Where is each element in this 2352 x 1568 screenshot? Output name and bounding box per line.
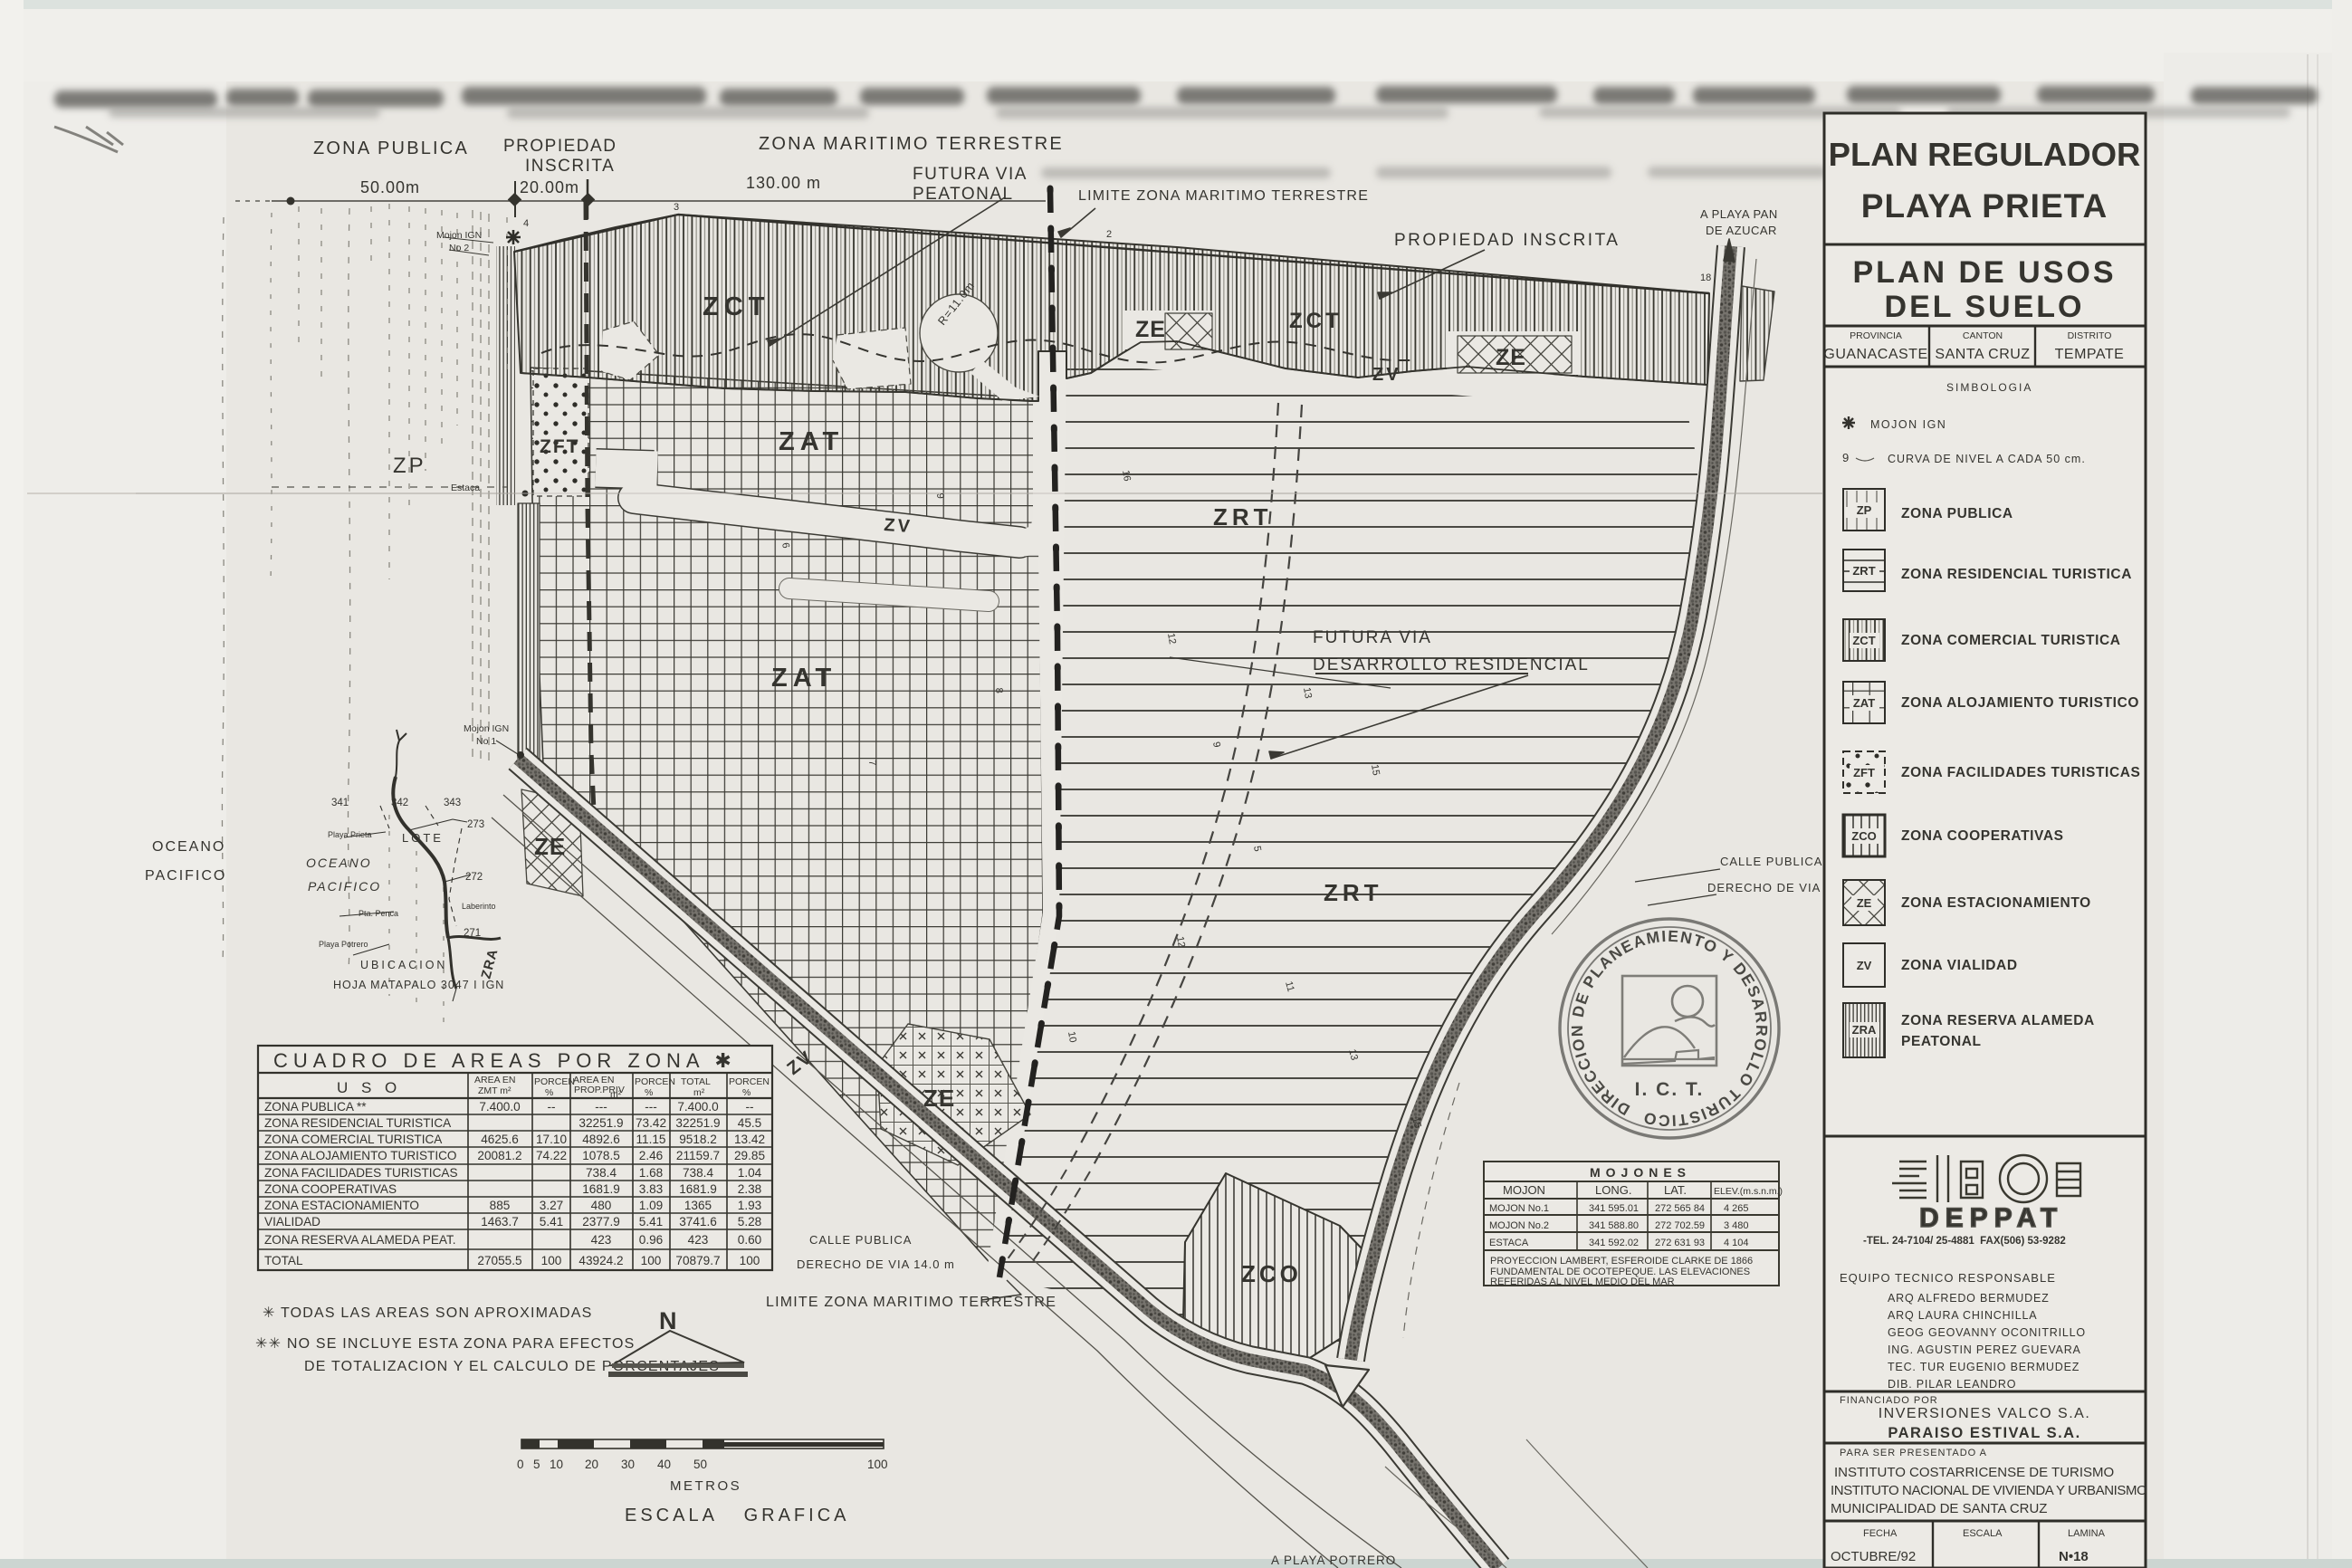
svg-text:DISTRITO: DISTRITO bbox=[2068, 330, 2112, 341]
svg-text:1365: 1365 bbox=[684, 1199, 712, 1212]
svg-text:4892.6: 4892.6 bbox=[582, 1133, 620, 1146]
svg-text:A PLAYA POTRERO: A PLAYA POTRERO bbox=[1271, 1554, 1396, 1567]
svg-text:2: 2 bbox=[1106, 229, 1112, 240]
svg-text:1.04: 1.04 bbox=[738, 1166, 762, 1180]
svg-text:273: 273 bbox=[467, 819, 484, 830]
svg-text:423: 423 bbox=[688, 1233, 709, 1247]
svg-text:100: 100 bbox=[641, 1254, 662, 1267]
svg-text:ZCT: ZCT bbox=[703, 292, 770, 321]
svg-text:3.27: 3.27 bbox=[540, 1199, 563, 1212]
svg-text:272 702.59: 272 702.59 bbox=[1655, 1220, 1705, 1231]
svg-text:480: 480 bbox=[591, 1199, 612, 1212]
svg-text:ZONA COOPERATIVAS: ZONA COOPERATIVAS bbox=[264, 1182, 397, 1196]
svg-text:UBICACION: UBICACION bbox=[360, 959, 447, 971]
svg-text:TOTAL: TOTAL bbox=[264, 1254, 303, 1267]
svg-text:5.41: 5.41 bbox=[540, 1215, 563, 1229]
svg-text:738.4: 738.4 bbox=[586, 1166, 617, 1180]
svg-text:ZONA MARITIMO TERRESTRE: ZONA MARITIMO TERRESTRE bbox=[759, 134, 1064, 154]
svg-text:CURVA DE NIVEL A CADA 50 cm.: CURVA DE NIVEL A CADA 50 cm. bbox=[1888, 453, 2086, 465]
svg-text:PROYECCION LAMBERT, ESFEROIDE: PROYECCION LAMBERT, ESFEROIDE CLARKE DE … bbox=[1490, 1256, 1753, 1267]
svg-text:HOJA MATAPALO 3047 I IGN: HOJA MATAPALO 3047 I IGN bbox=[333, 979, 504, 991]
svg-text:m²: m² bbox=[610, 1089, 622, 1100]
svg-text:%: % bbox=[645, 1087, 653, 1098]
svg-text:18: 18 bbox=[1700, 272, 1711, 283]
svg-text:DERECHO DE VIA 14.0 m: DERECHO DE VIA 14.0 m bbox=[797, 1257, 955, 1271]
svg-text:10: 10 bbox=[550, 1458, 563, 1471]
svg-text:ZAT: ZAT bbox=[1853, 696, 1875, 710]
svg-text:No 2: No 2 bbox=[449, 243, 469, 253]
svg-text:FUTURA VIA: FUTURA VIA bbox=[1313, 628, 1432, 647]
svg-text:27055.5: 27055.5 bbox=[477, 1254, 521, 1267]
svg-text:PARA SER PRESENTADO A: PARA SER PRESENTADO A bbox=[1840, 1448, 1987, 1458]
svg-text:100: 100 bbox=[867, 1458, 888, 1471]
svg-text:ZE: ZE bbox=[1857, 896, 1872, 910]
svg-text:LONG.: LONG. bbox=[1595, 1183, 1631, 1197]
svg-text:TOTAL: TOTAL bbox=[681, 1076, 711, 1087]
svg-text:272 565 84: 272 565 84 bbox=[1655, 1203, 1705, 1214]
svg-text:LAMINA: LAMINA bbox=[2068, 1528, 2106, 1539]
svg-text:ARQ ALFREDO BERMUDEZ: ARQ ALFREDO BERMUDEZ bbox=[1888, 1292, 2050, 1305]
svg-text:341: 341 bbox=[331, 798, 349, 808]
svg-text:OCEANO: OCEANO bbox=[306, 856, 372, 870]
svg-text:100: 100 bbox=[541, 1254, 562, 1267]
svg-text:ESCALA: ESCALA bbox=[1963, 1528, 2003, 1539]
svg-text:N•18: N•18 bbox=[2059, 1549, 2089, 1564]
svg-text:3 480: 3 480 bbox=[1724, 1220, 1749, 1231]
svg-text:271: 271 bbox=[464, 928, 481, 939]
svg-text:43924.2: 43924.2 bbox=[578, 1254, 623, 1267]
svg-text:30: 30 bbox=[621, 1458, 635, 1471]
svg-text:29.85: 29.85 bbox=[734, 1149, 765, 1162]
svg-text:PACIFICO: PACIFICO bbox=[308, 879, 381, 894]
svg-text:ZE: ZE bbox=[1496, 345, 1526, 370]
svg-text:73.42: 73.42 bbox=[636, 1116, 666, 1130]
svg-text:ZONA ALOJAMIENTO TURISTICO: ZONA ALOJAMIENTO TURISTICO bbox=[1901, 695, 2139, 711]
svg-text:CANTON: CANTON bbox=[1963, 330, 2003, 341]
svg-text:DESARROLLO RESIDENCIAL: DESARROLLO RESIDENCIAL bbox=[1313, 655, 1590, 674]
svg-text:5.28: 5.28 bbox=[738, 1215, 761, 1229]
svg-text:REFERIDAS AL NIVEL MEDIO DEL M: REFERIDAS AL NIVEL MEDIO DEL MAR bbox=[1490, 1276, 1675, 1287]
svg-text:4 104: 4 104 bbox=[1724, 1238, 1749, 1248]
svg-text:TEMPATE: TEMPATE bbox=[2055, 347, 2125, 362]
svg-text:PROPIEDAD INSCRITA: PROPIEDAD INSCRITA bbox=[1394, 231, 1620, 250]
svg-text:A PLAYA PAN: A PLAYA PAN bbox=[1700, 207, 1778, 221]
svg-text:341 592.02: 341 592.02 bbox=[1589, 1238, 1639, 1248]
svg-text:ZONA COOPERATIVAS: ZONA COOPERATIVAS bbox=[1901, 828, 2064, 844]
svg-text:PROPIEDAD: PROPIEDAD bbox=[503, 137, 617, 156]
svg-text:INSCRITA: INSCRITA bbox=[525, 157, 615, 176]
svg-text:CALLE PUBLICA: CALLE PUBLICA bbox=[1720, 855, 1822, 868]
svg-text:METROS: METROS bbox=[670, 1478, 741, 1494]
svg-text:EQUIPO TECNICO RESPONSABLE: EQUIPO TECNICO RESPONSABLE bbox=[1840, 1271, 2056, 1285]
svg-text:ELEV.(m.s.n.m.): ELEV.(m.s.n.m.) bbox=[1714, 1186, 1783, 1197]
svg-text:ZE: ZE bbox=[923, 1085, 955, 1112]
svg-text:SANTA CRUZ: SANTA CRUZ bbox=[1935, 347, 2030, 362]
svg-text:PROVINCIA: PROVINCIA bbox=[1850, 330, 1902, 341]
svg-text:ZONA VIALIDAD: ZONA VIALIDAD bbox=[1901, 958, 2018, 973]
svg-text:Playa Potrero: Playa Potrero bbox=[319, 940, 368, 949]
svg-text:21159.7: 21159.7 bbox=[676, 1149, 720, 1162]
svg-text:9518.2: 9518.2 bbox=[679, 1133, 717, 1146]
svg-text:ZONA FACILIDADES TURISTICAS: ZONA FACILIDADES TURISTICAS bbox=[1901, 765, 2141, 780]
svg-text:PORCEN: PORCEN bbox=[635, 1076, 675, 1087]
svg-text:50.00m: 50.00m bbox=[360, 178, 420, 196]
svg-text:ZRT: ZRT bbox=[1324, 879, 1383, 906]
svg-text:ZCT: ZCT bbox=[1852, 634, 1875, 647]
svg-text:FUTURA VIA: FUTURA VIA bbox=[913, 165, 1028, 184]
svg-text:I. C. T.: I. C. T. bbox=[1635, 1079, 1705, 1100]
svg-text:INVERSIONES VALCO S.A.: INVERSIONES VALCO S.A. bbox=[1879, 1406, 2091, 1421]
svg-text:ZONA RESERVA ALAMEDA: ZONA RESERVA ALAMEDA bbox=[1901, 1013, 2095, 1028]
svg-text:ZONA RESIDENCIAL TURISTICA: ZONA RESIDENCIAL TURISTICA bbox=[264, 1116, 452, 1130]
svg-text:1.93: 1.93 bbox=[738, 1199, 761, 1212]
svg-text:8: 8 bbox=[993, 687, 1004, 693]
svg-text:ZONA COMERCIAL TURISTICA: ZONA COMERCIAL TURISTICA bbox=[264, 1133, 443, 1146]
svg-text:ZV: ZV bbox=[884, 515, 913, 537]
svg-text:GUANACASTE: GUANACASTE bbox=[1823, 347, 1927, 362]
svg-text:PORCEN: PORCEN bbox=[534, 1076, 575, 1087]
svg-text:ZV: ZV bbox=[1372, 365, 1401, 385]
svg-text:272: 272 bbox=[465, 872, 483, 883]
svg-text:0.96: 0.96 bbox=[639, 1233, 663, 1247]
svg-text:%: % bbox=[742, 1087, 751, 1098]
svg-text:ZONA COMERCIAL TURISTICA: ZONA COMERCIAL TURISTICA bbox=[1901, 633, 2121, 648]
svg-text:DEL SUELO: DEL SUELO bbox=[1885, 290, 2085, 324]
svg-text:130.00 m: 130.00 m bbox=[746, 174, 821, 192]
svg-text:32251.9: 32251.9 bbox=[578, 1116, 623, 1130]
svg-text:ZRT: ZRT bbox=[1213, 503, 1273, 531]
svg-text:ZE: ZE bbox=[534, 833, 566, 860]
svg-text:MOJON: MOJON bbox=[1503, 1183, 1545, 1197]
svg-text:20081.2: 20081.2 bbox=[477, 1149, 521, 1162]
svg-text:1.68: 1.68 bbox=[639, 1166, 663, 1180]
svg-text:12: 12 bbox=[1174, 935, 1187, 948]
svg-text:ZCT: ZCT bbox=[1289, 309, 1343, 333]
svg-text:MOJONES: MOJONES bbox=[1590, 1165, 1691, 1180]
svg-text:13: 13 bbox=[1301, 686, 1314, 699]
svg-text:OCEANO: OCEANO bbox=[152, 839, 225, 855]
svg-text:ZONA RESIDENCIAL TURISTICA: ZONA RESIDENCIAL TURISTICA bbox=[1901, 567, 2132, 582]
svg-text:VIALIDAD: VIALIDAD bbox=[264, 1215, 320, 1229]
svg-text:343: 343 bbox=[444, 798, 461, 808]
svg-text:--: -- bbox=[547, 1100, 555, 1114]
svg-text:PEATONAL: PEATONAL bbox=[913, 185, 1014, 204]
svg-text:341 595.01: 341 595.01 bbox=[1589, 1203, 1639, 1214]
svg-text:GEOG GEOVANNY OCONITRILLO: GEOG GEOVANNY OCONITRILLO bbox=[1888, 1326, 2086, 1339]
svg-text:DEPPAT: DEPPAT bbox=[1919, 1203, 2063, 1233]
svg-text:PEATONAL: PEATONAL bbox=[1901, 1034, 1982, 1049]
svg-text:SIMBOLOGIA: SIMBOLOGIA bbox=[1946, 381, 2032, 394]
svg-text:INSTITUTO NACIONAL DE VIVIENDA: INSTITUTO NACIONAL DE VIVIENDA Y URBANIS… bbox=[1831, 1483, 2146, 1498]
svg-text:5: 5 bbox=[533, 1458, 540, 1471]
svg-text:ZONA ESTACIONAMIENTO: ZONA ESTACIONAMIENTO bbox=[1901, 895, 2091, 911]
svg-text:32251.9: 32251.9 bbox=[675, 1116, 720, 1130]
svg-text:0.60: 0.60 bbox=[738, 1233, 762, 1247]
svg-text:✳ TODAS LAS AREAS SON APROXIM: ✳ TODAS LAS AREAS SON APROXIMADAS bbox=[263, 1305, 593, 1321]
svg-text:DE AZUCAR: DE AZUCAR bbox=[1706, 224, 1777, 237]
svg-text:ESCALA GRAFICA: ESCALA GRAFICA bbox=[625, 1506, 850, 1525]
svg-text:341 588.80: 341 588.80 bbox=[1589, 1220, 1639, 1231]
svg-text:ZE: ZE bbox=[1135, 317, 1166, 342]
svg-text:1463.7: 1463.7 bbox=[481, 1215, 519, 1229]
svg-text:423: 423 bbox=[591, 1233, 612, 1247]
svg-text:1681.9: 1681.9 bbox=[679, 1182, 717, 1196]
svg-text:Laberinto: Laberinto bbox=[462, 902, 496, 911]
svg-text:Mojon IGN: Mojon IGN bbox=[464, 723, 509, 734]
svg-text:3: 3 bbox=[674, 202, 679, 213]
svg-text:OCTUBRE/92: OCTUBRE/92 bbox=[1831, 1549, 1916, 1564]
svg-text:INSTITUTO COSTARRICENSE DE TUR: INSTITUTO COSTARRICENSE DE TURISMO bbox=[1834, 1465, 2114, 1480]
svg-text:2.46: 2.46 bbox=[639, 1149, 663, 1162]
svg-text:LOTE: LOTE bbox=[402, 831, 444, 845]
svg-text:m²: m² bbox=[693, 1087, 705, 1098]
svg-text:45.5: 45.5 bbox=[738, 1116, 761, 1130]
svg-text:885: 885 bbox=[490, 1199, 511, 1212]
svg-text:50: 50 bbox=[693, 1458, 707, 1471]
svg-text:ZRA: ZRA bbox=[1852, 1023, 1877, 1037]
svg-text:17.10: 17.10 bbox=[536, 1133, 567, 1146]
svg-text:ZV: ZV bbox=[1857, 959, 1872, 972]
svg-text:ARQ LAURA CHINCHILLA: ARQ LAURA CHINCHILLA bbox=[1888, 1309, 2037, 1322]
svg-text:ZONA PUBLICA **: ZONA PUBLICA ** bbox=[264, 1100, 367, 1114]
svg-text:1681.9: 1681.9 bbox=[582, 1182, 620, 1196]
svg-text:ZP: ZP bbox=[393, 454, 426, 478]
svg-text:ZONA PUBLICA: ZONA PUBLICA bbox=[313, 139, 469, 158]
svg-text:ZONA PUBLICA: ZONA PUBLICA bbox=[1901, 506, 2013, 521]
svg-text:---: --- bbox=[595, 1100, 607, 1114]
svg-text:ZONA RESERVA ALAMEDA PEAT.: ZONA RESERVA ALAMEDA PEAT. bbox=[264, 1233, 456, 1247]
svg-text:PLAN DE USOS: PLAN DE USOS bbox=[1852, 255, 2116, 290]
svg-text:PACIFICO: PACIFICO bbox=[145, 868, 226, 884]
svg-text:1078.5: 1078.5 bbox=[582, 1149, 620, 1162]
svg-text:342: 342 bbox=[391, 798, 408, 808]
svg-text:ZONA FACILIDADES TURISTICAS: ZONA FACILIDADES TURISTICAS bbox=[264, 1166, 458, 1180]
svg-text:AREA EN: AREA EN bbox=[474, 1075, 516, 1085]
svg-text:13.42: 13.42 bbox=[734, 1133, 765, 1146]
svg-text:ZAT: ZAT bbox=[771, 664, 837, 693]
svg-text:ZAT: ZAT bbox=[779, 427, 844, 456]
svg-text:CUADRO DE AREAS POR ZONA ✱: CUADRO DE AREAS POR ZONA ✱ bbox=[273, 1049, 737, 1072]
svg-text:PARAISO ESTIVAL S.A.: PARAISO ESTIVAL S.A. bbox=[1888, 1425, 2080, 1441]
svg-text:5.41: 5.41 bbox=[639, 1215, 663, 1229]
svg-text:Estaca: Estaca bbox=[451, 483, 480, 493]
svg-text:70879.7: 70879.7 bbox=[675, 1254, 720, 1267]
svg-text:N: N bbox=[659, 1307, 678, 1334]
svg-text:---: --- bbox=[645, 1100, 657, 1114]
svg-text:ESTACA: ESTACA bbox=[1489, 1238, 1529, 1248]
svg-text:ZONA ESTACIONAMIENTO: ZONA ESTACIONAMIENTO bbox=[264, 1199, 419, 1212]
svg-text:74.22: 74.22 bbox=[536, 1149, 567, 1162]
svg-text:MOJON No.1: MOJON No.1 bbox=[1489, 1203, 1549, 1214]
svg-text:272 631 93: 272 631 93 bbox=[1655, 1238, 1705, 1248]
svg-text:CALLE PUBLICA: CALLE PUBLICA bbox=[809, 1233, 912, 1247]
svg-text:LIMITE ZONA MARITIMO TERRESTRE: LIMITE ZONA MARITIMO TERRESTRE bbox=[766, 1295, 1056, 1310]
svg-text:ZFT: ZFT bbox=[1853, 766, 1875, 779]
svg-text:FINANCIADO POR: FINANCIADO POR bbox=[1840, 1395, 1938, 1406]
svg-text:2377.9: 2377.9 bbox=[582, 1215, 620, 1229]
svg-text:7.400.0: 7.400.0 bbox=[677, 1100, 719, 1114]
svg-text:ZMT m²: ZMT m² bbox=[478, 1085, 512, 1096]
svg-text:4: 4 bbox=[523, 218, 529, 229]
svg-text:7.400.0: 7.400.0 bbox=[479, 1100, 521, 1114]
svg-text:1.09: 1.09 bbox=[639, 1199, 663, 1212]
svg-text:--: -- bbox=[745, 1100, 753, 1114]
svg-text:Playa Prieta: Playa Prieta bbox=[328, 830, 372, 839]
svg-text:U S O: U S O bbox=[337, 1079, 401, 1096]
svg-text:MUNICIPALIDAD DE SANTA CRUZ: MUNICIPALIDAD DE SANTA CRUZ bbox=[1831, 1501, 2047, 1516]
svg-text:3.83: 3.83 bbox=[639, 1182, 663, 1196]
svg-text:FECHA: FECHA bbox=[1863, 1528, 1898, 1539]
svg-text:11.15: 11.15 bbox=[636, 1133, 665, 1146]
svg-text:100: 100 bbox=[740, 1254, 760, 1267]
svg-text:738.4: 738.4 bbox=[683, 1166, 713, 1180]
svg-text:PLAYA PRIETA: PLAYA PRIETA bbox=[1861, 187, 2108, 225]
svg-text:ZCO: ZCO bbox=[1851, 829, 1876, 843]
svg-text:7: 7 bbox=[866, 760, 877, 766]
svg-text:%: % bbox=[545, 1087, 553, 1098]
svg-text:2.38: 2.38 bbox=[738, 1182, 761, 1196]
svg-text:4 265: 4 265 bbox=[1724, 1203, 1749, 1214]
svg-text:ZP: ZP bbox=[1857, 503, 1872, 517]
svg-text:9: 9 bbox=[934, 492, 945, 499]
svg-text:20.00m: 20.00m bbox=[520, 178, 579, 196]
svg-text:10: 10 bbox=[1066, 1030, 1078, 1043]
svg-text:DIB. PILAR LEANDRO: DIB. PILAR LEANDRO bbox=[1888, 1378, 2016, 1391]
svg-text:ZRT: ZRT bbox=[1852, 564, 1875, 578]
svg-text:ZONA ALOJAMIENTO TURISTICO: ZONA ALOJAMIENTO TURISTICO bbox=[264, 1149, 457, 1162]
svg-text:✳✳ NO SE INCLUYE ESTA ZONA PA: ✳✳ NO SE INCLUYE ESTA ZONA PARA EFECTOS bbox=[255, 1336, 635, 1352]
svg-text:15: 15 bbox=[1369, 763, 1382, 776]
svg-text:16: 16 bbox=[1120, 469, 1133, 482]
svg-text:9: 9 bbox=[1842, 451, 1849, 464]
svg-text:ZFT: ZFT bbox=[540, 436, 579, 457]
svg-text:Mojon IGN: Mojon IGN bbox=[436, 230, 482, 241]
svg-text:3741.6: 3741.6 bbox=[679, 1215, 717, 1229]
svg-text:40: 40 bbox=[657, 1458, 671, 1471]
svg-text:Pta. Penca: Pta. Penca bbox=[359, 909, 398, 918]
svg-text:PORCEN: PORCEN bbox=[729, 1076, 770, 1087]
svg-text:ZCO: ZCO bbox=[1241, 1260, 1302, 1287]
svg-text:0: 0 bbox=[517, 1458, 524, 1471]
svg-text:4625.6: 4625.6 bbox=[481, 1133, 519, 1146]
svg-text:No 1: No 1 bbox=[476, 736, 496, 747]
svg-text:LIMITE ZONA MARITIMO TERRESTRE: LIMITE ZONA MARITIMO TERRESTRE bbox=[1078, 188, 1369, 204]
svg-text:ING. AGUSTIN PEREZ GUEVARA: ING. AGUSTIN PEREZ GUEVARA bbox=[1888, 1343, 2081, 1356]
svg-text:MOJON No.2: MOJON No.2 bbox=[1489, 1220, 1549, 1231]
svg-text:PLAN REGULADOR: PLAN REGULADOR bbox=[1829, 136, 2141, 173]
svg-text:MOJON IGN: MOJON IGN bbox=[1870, 418, 1946, 431]
svg-text:TEC. TUR EUGENIO BERMUDEZ: TEC. TUR EUGENIO BERMUDEZ bbox=[1888, 1361, 2080, 1373]
svg-text:-TEL. 24-7104/ 25-4881 FAX(50: -TEL. 24-7104/ 25-4881 FAX(506) 53-9282 bbox=[1863, 1236, 2066, 1247]
svg-text:20: 20 bbox=[585, 1458, 598, 1471]
svg-text:LAT.: LAT. bbox=[1664, 1183, 1687, 1197]
svg-text:12: 12 bbox=[1165, 632, 1178, 645]
